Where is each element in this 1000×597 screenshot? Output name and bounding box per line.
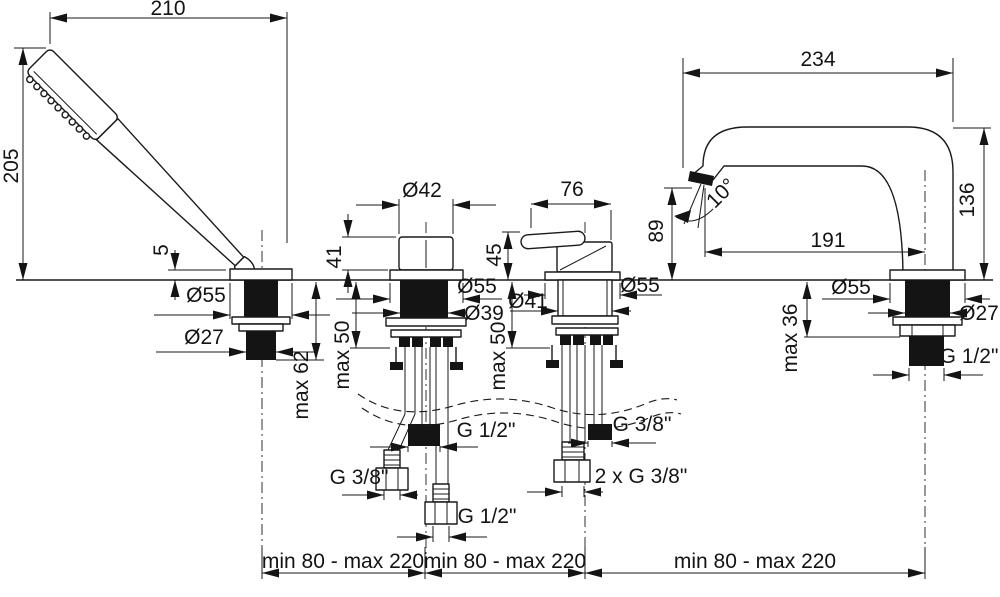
dim-spout-flange-dia: Ø55 bbox=[831, 276, 871, 299]
dim-spout-axis-reach: 191 bbox=[810, 229, 845, 252]
dim-spout-thread: G 1/2" bbox=[940, 345, 999, 368]
dim-mixer-height: 45 bbox=[483, 243, 506, 266]
dim-spout-outlet-height: 89 bbox=[645, 219, 668, 242]
dim-diverter-body-dia: Ø39 bbox=[464, 302, 504, 325]
dim-spacing-right: min 80 - max 220 bbox=[674, 550, 836, 573]
dim-mixer-flange-dia: Ø55 bbox=[620, 274, 660, 297]
outlet-connector-g38 bbox=[588, 424, 612, 440]
diverter-valve bbox=[376, 237, 466, 524]
aerator bbox=[688, 171, 714, 186]
dim-diverter-height: 41 bbox=[323, 245, 346, 268]
dim-spout-shank-dia: Ø27 bbox=[959, 302, 999, 325]
dim-diverter-flange-dia: Ø55 bbox=[457, 275, 497, 298]
dim-spout-max-deck: max 36 bbox=[779, 304, 802, 373]
dim-diverter-hose-thread: G 3/8" bbox=[330, 466, 389, 489]
hose-fitting-2xg38 bbox=[554, 442, 590, 482]
dim-mixer-hose-thread: 2 x G 3/8" bbox=[595, 465, 688, 488]
dim-holder-shank-dia: Ø27 bbox=[184, 326, 224, 349]
dim-hand-shower-width: 210 bbox=[150, 0, 185, 20]
outlet-connector-g12 bbox=[408, 424, 440, 446]
hand-shower bbox=[22, 48, 255, 278]
dimension-labels: 210 205 5 Ø55 Ø27 max 62 Ø42 41 Ø55 Ø39 … bbox=[0, 0, 999, 573]
dim-hand-shower-height: 205 bbox=[0, 148, 23, 183]
dim-spout-reach: 234 bbox=[800, 48, 835, 71]
dim-spout-height: 136 bbox=[956, 182, 979, 217]
faucet-dimension-drawing: 210 205 5 Ø55 Ø27 max 62 Ø42 41 Ø55 Ø39 … bbox=[0, 0, 1000, 597]
dim-mixer-width: 76 bbox=[560, 178, 583, 201]
dim-mixer-body-dia: Ø41 bbox=[508, 290, 548, 313]
shower-hose-fitting-g12 bbox=[425, 484, 457, 524]
dim-diverter-max-deck: max 50 bbox=[331, 321, 354, 390]
technical-drawing-page: 210 205 5 Ø55 Ø27 max 62 Ø42 41 Ø55 Ø39 … bbox=[0, 0, 1000, 597]
dim-mixer-max-deck: max 50 bbox=[487, 322, 510, 391]
dim-mixer-outlet-thread: G 3/8" bbox=[613, 413, 672, 436]
dim-shower-hose-thread: G 1/2" bbox=[458, 505, 517, 528]
dim-spacing-middle: min 80 - max 220 bbox=[424, 550, 586, 573]
dim-escutcheon-height: 5 bbox=[150, 244, 173, 256]
dim-spacing-left: min 80 - max 220 bbox=[262, 550, 424, 573]
dim-holder-max-deck: max 62 bbox=[290, 351, 313, 420]
hand-shower-holder bbox=[230, 269, 292, 360]
dim-diverter-knob-dia: Ø42 bbox=[402, 179, 442, 202]
dim-holder-escutcheon-dia: Ø55 bbox=[186, 284, 226, 307]
dim-diverter-outlet-thread: G 1/2" bbox=[457, 419, 516, 442]
